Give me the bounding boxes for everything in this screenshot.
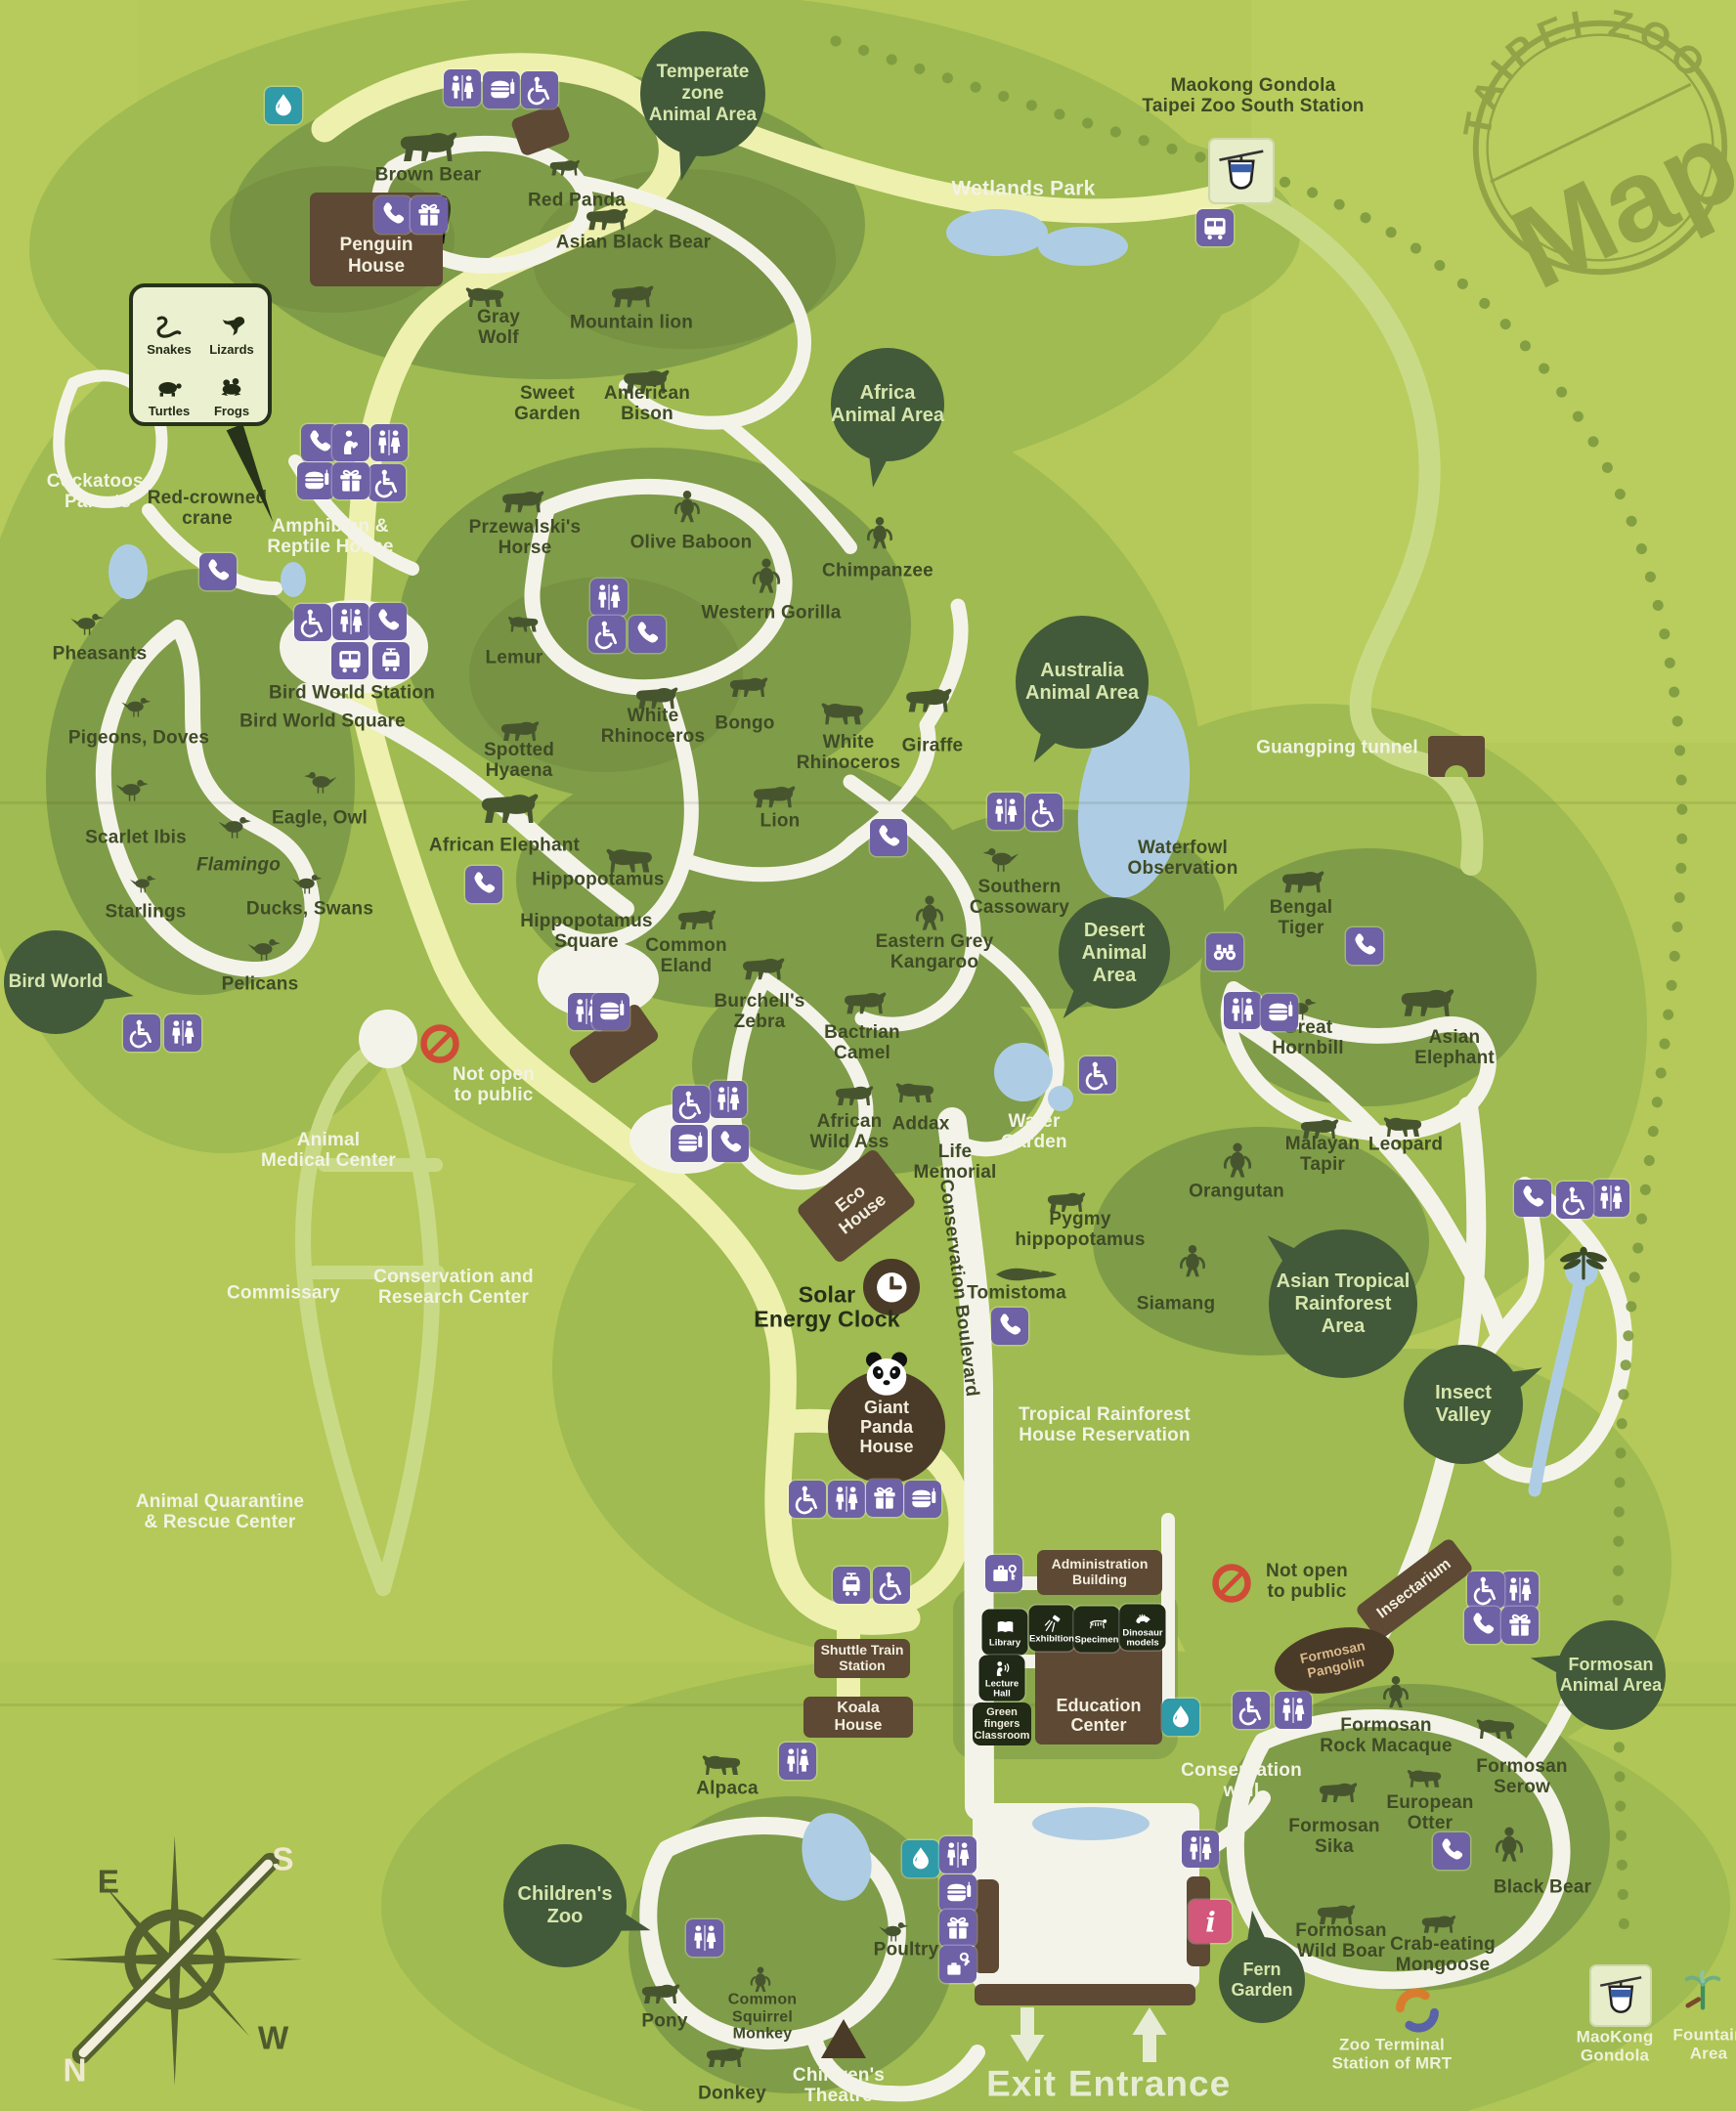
insect-valley: Insect Valley [1404, 1345, 1523, 1464]
compass-west: W [258, 2020, 289, 2056]
legend-item-frogs: Frogs [200, 357, 263, 419]
australia-animal-area: Australia Animal Area [1016, 616, 1149, 749]
compass-east: E [98, 1864, 119, 1900]
formosan-animal-area: Formosan Animal Area [1556, 1620, 1666, 1730]
desert-animal-area: Desert Animal Area [1059, 897, 1170, 1009]
compass-rose: E S W N [51, 1830, 315, 2093]
compass-south: S [272, 1842, 293, 1878]
asian-tropical-rainforest-area: Asian Tropical Rainforest Area [1269, 1229, 1417, 1378]
temperate-zone-animal-area: Temperate zone Animal Area [640, 31, 765, 156]
fern-garden: Fern Garden [1219, 1937, 1305, 2023]
legend-item-lizards: Lizards [200, 294, 263, 357]
bird-world: Bird World [4, 930, 108, 1034]
africa-animal-area: Africa Animal Area [831, 348, 944, 461]
compass-north: N [63, 2053, 86, 2089]
taipei-zoo-map: Penguin HouseEco HouseGiant Panda HouseS… [0, 0, 1736, 2111]
reptile-legend-callout: SnakesLizardsTurtlesFrogs [129, 283, 272, 426]
legend-item-snakes: Snakes [138, 294, 200, 357]
legend-item-turtles: Turtles [138, 357, 200, 419]
childrens-zoo: Children's Zoo [503, 1844, 627, 1967]
